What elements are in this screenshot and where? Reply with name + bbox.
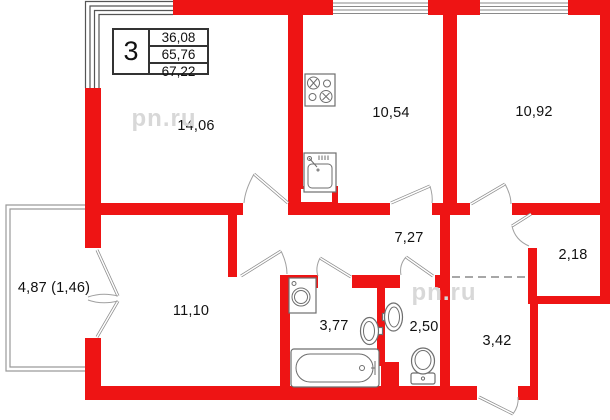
room-label-wc: 2,50 (409, 319, 438, 335)
door-wc (401, 257, 433, 276)
area-without-balcony: 65,76 (150, 47, 207, 64)
bedroom-window (480, 3, 568, 14)
living-area: 36,08 (150, 30, 207, 47)
toilet-icon (411, 348, 435, 384)
total-area: 67,22 (150, 64, 207, 79)
door-room-11-10 (241, 251, 287, 276)
balcony-french-door (88, 250, 118, 337)
wc-sink-icon (383, 303, 403, 331)
door-room-14 (244, 174, 288, 203)
kitchen-window (333, 3, 428, 14)
room-label-entry: 3,42 (482, 333, 511, 349)
door-room-10-92 (471, 184, 511, 204)
rooms-count: 3 (114, 30, 150, 73)
door-closet (512, 214, 531, 246)
room-label-hallway: 7,27 (394, 230, 423, 246)
floorplan: 3 36,08 65,76 67,22 14,0610,5410,927,272… (0, 0, 610, 420)
door-kitchen (391, 186, 432, 203)
apartment-info-table: 3 36,08 65,76 67,22 (112, 28, 209, 75)
room-label-kitchen: 10,54 (372, 105, 409, 121)
door-bathroom (317, 258, 351, 277)
room-label-bathroom: 3,77 (319, 318, 348, 334)
watermark-2: pn.ru (412, 279, 477, 307)
floorplan-drawing (0, 0, 610, 420)
room-label-room-10-92: 10,92 (515, 104, 552, 120)
stove-icon (305, 74, 335, 106)
bathtub-icon (291, 349, 379, 387)
area-values: 36,08 65,76 67,22 (150, 30, 207, 73)
room-label-room-11-10: 11,10 (173, 303, 209, 319)
kitchen-sink-icon (304, 153, 336, 192)
watermark-1: pn.ru (132, 105, 197, 133)
room-label-balcony: 4,87 (1,46) (18, 280, 90, 296)
room-label-closet: 2,18 (558, 247, 587, 263)
entrance-door (479, 397, 518, 414)
washing-machine-icon (289, 278, 316, 313)
